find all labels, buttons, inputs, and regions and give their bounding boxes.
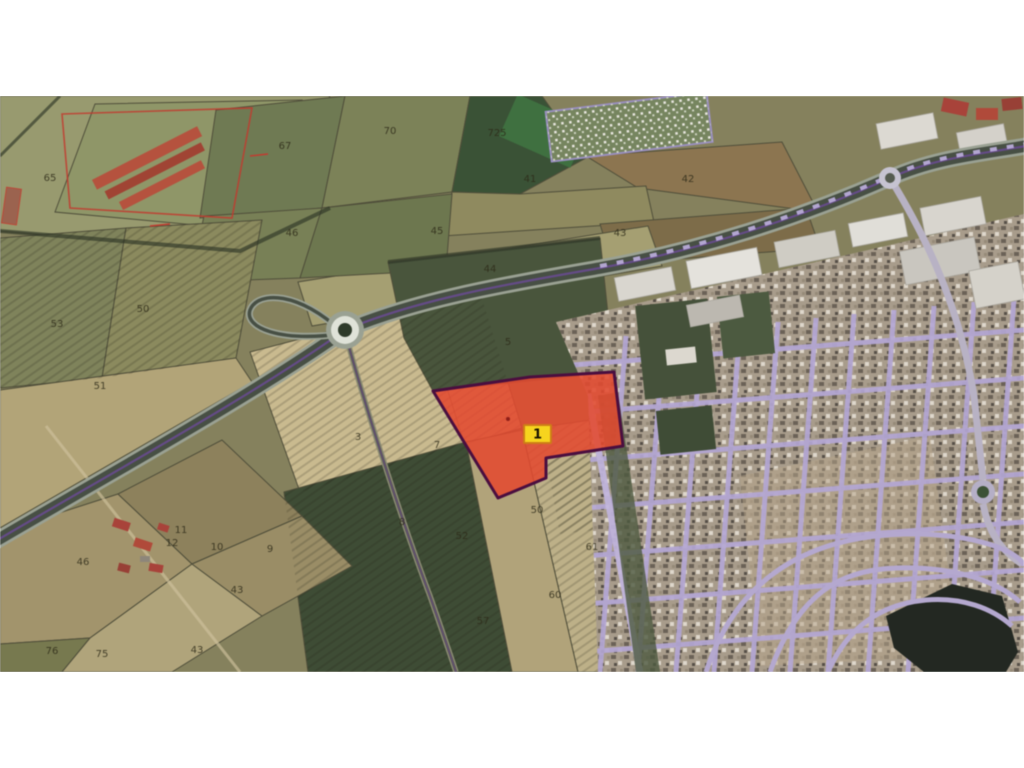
parcel-interior-mark — [506, 417, 510, 421]
map-canvas: 1 65 67 70 725 41 42 46 45 43 44 53 50 5… — [0, 96, 1024, 672]
field-number-label: 5 — [505, 337, 511, 348]
field-number-label: 76 — [46, 646, 59, 657]
field-number-label: 57 — [477, 616, 490, 627]
field-number-label: 53 — [51, 319, 64, 330]
field-number-label: 10 — [211, 542, 224, 553]
field-number-label: 8 — [399, 517, 405, 528]
field-number-label: 50 — [137, 304, 150, 315]
field-number-label: 44 — [484, 264, 497, 275]
roundabout-northeast — [879, 167, 901, 189]
field-number-label: 50 — [531, 505, 544, 516]
field-number-label: 43 — [231, 585, 244, 596]
field-number-label: 75 — [96, 649, 109, 660]
field-number-label: 60 — [549, 590, 562, 601]
field-number-label: 45 — [431, 226, 444, 237]
field-number-label: 51 — [94, 381, 107, 392]
field-number-label: 46 — [286, 228, 299, 239]
aerial-cadastral-map: 1 65 67 70 725 41 42 46 45 43 44 53 50 5… — [0, 96, 1024, 672]
field-number-label: 725 — [487, 128, 506, 139]
field-number-label: 61 — [586, 542, 599, 553]
field-number-label: 67 — [279, 141, 292, 152]
field-number-label: 9 — [267, 544, 273, 555]
roundabout-main — [326, 311, 364, 349]
field-number-label: 12 — [166, 538, 179, 549]
field-number-label: 43 — [614, 228, 627, 239]
parcel-badge-label: 1 — [533, 428, 542, 443]
field-number-label: 11 — [175, 525, 188, 536]
field-number-label: 65 — [44, 173, 57, 184]
field-number-label: 42 — [682, 174, 695, 185]
field-number-label: 41 — [524, 174, 537, 185]
photo-frame: 1 65 67 70 725 41 42 46 45 43 44 53 50 5… — [0, 0, 1024, 768]
field-number-label: 7 — [434, 440, 440, 451]
field-number-label: 43 — [191, 645, 204, 656]
field-number-label: 70 — [384, 126, 397, 137]
parcel-badge: 1 — [524, 425, 551, 443]
field-number-label: 3 — [355, 432, 361, 443]
field-number-label: 52 — [456, 531, 469, 542]
roundabout-east — [971, 480, 995, 504]
field-number-label: 46 — [77, 557, 90, 568]
